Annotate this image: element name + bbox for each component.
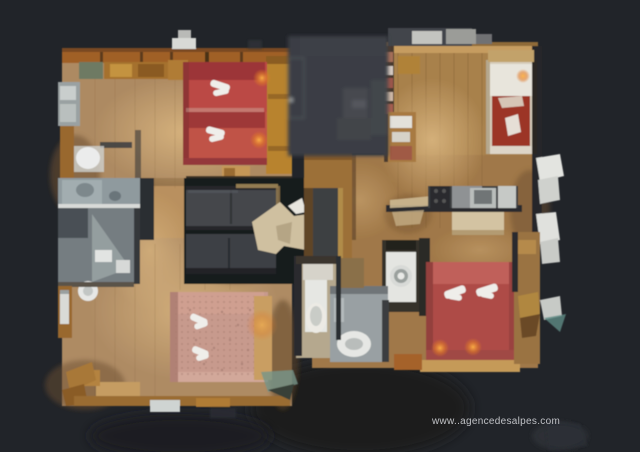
svg-text:www..agencedesalpes.com: www..agencedesalpes.com [431, 416, 560, 427]
